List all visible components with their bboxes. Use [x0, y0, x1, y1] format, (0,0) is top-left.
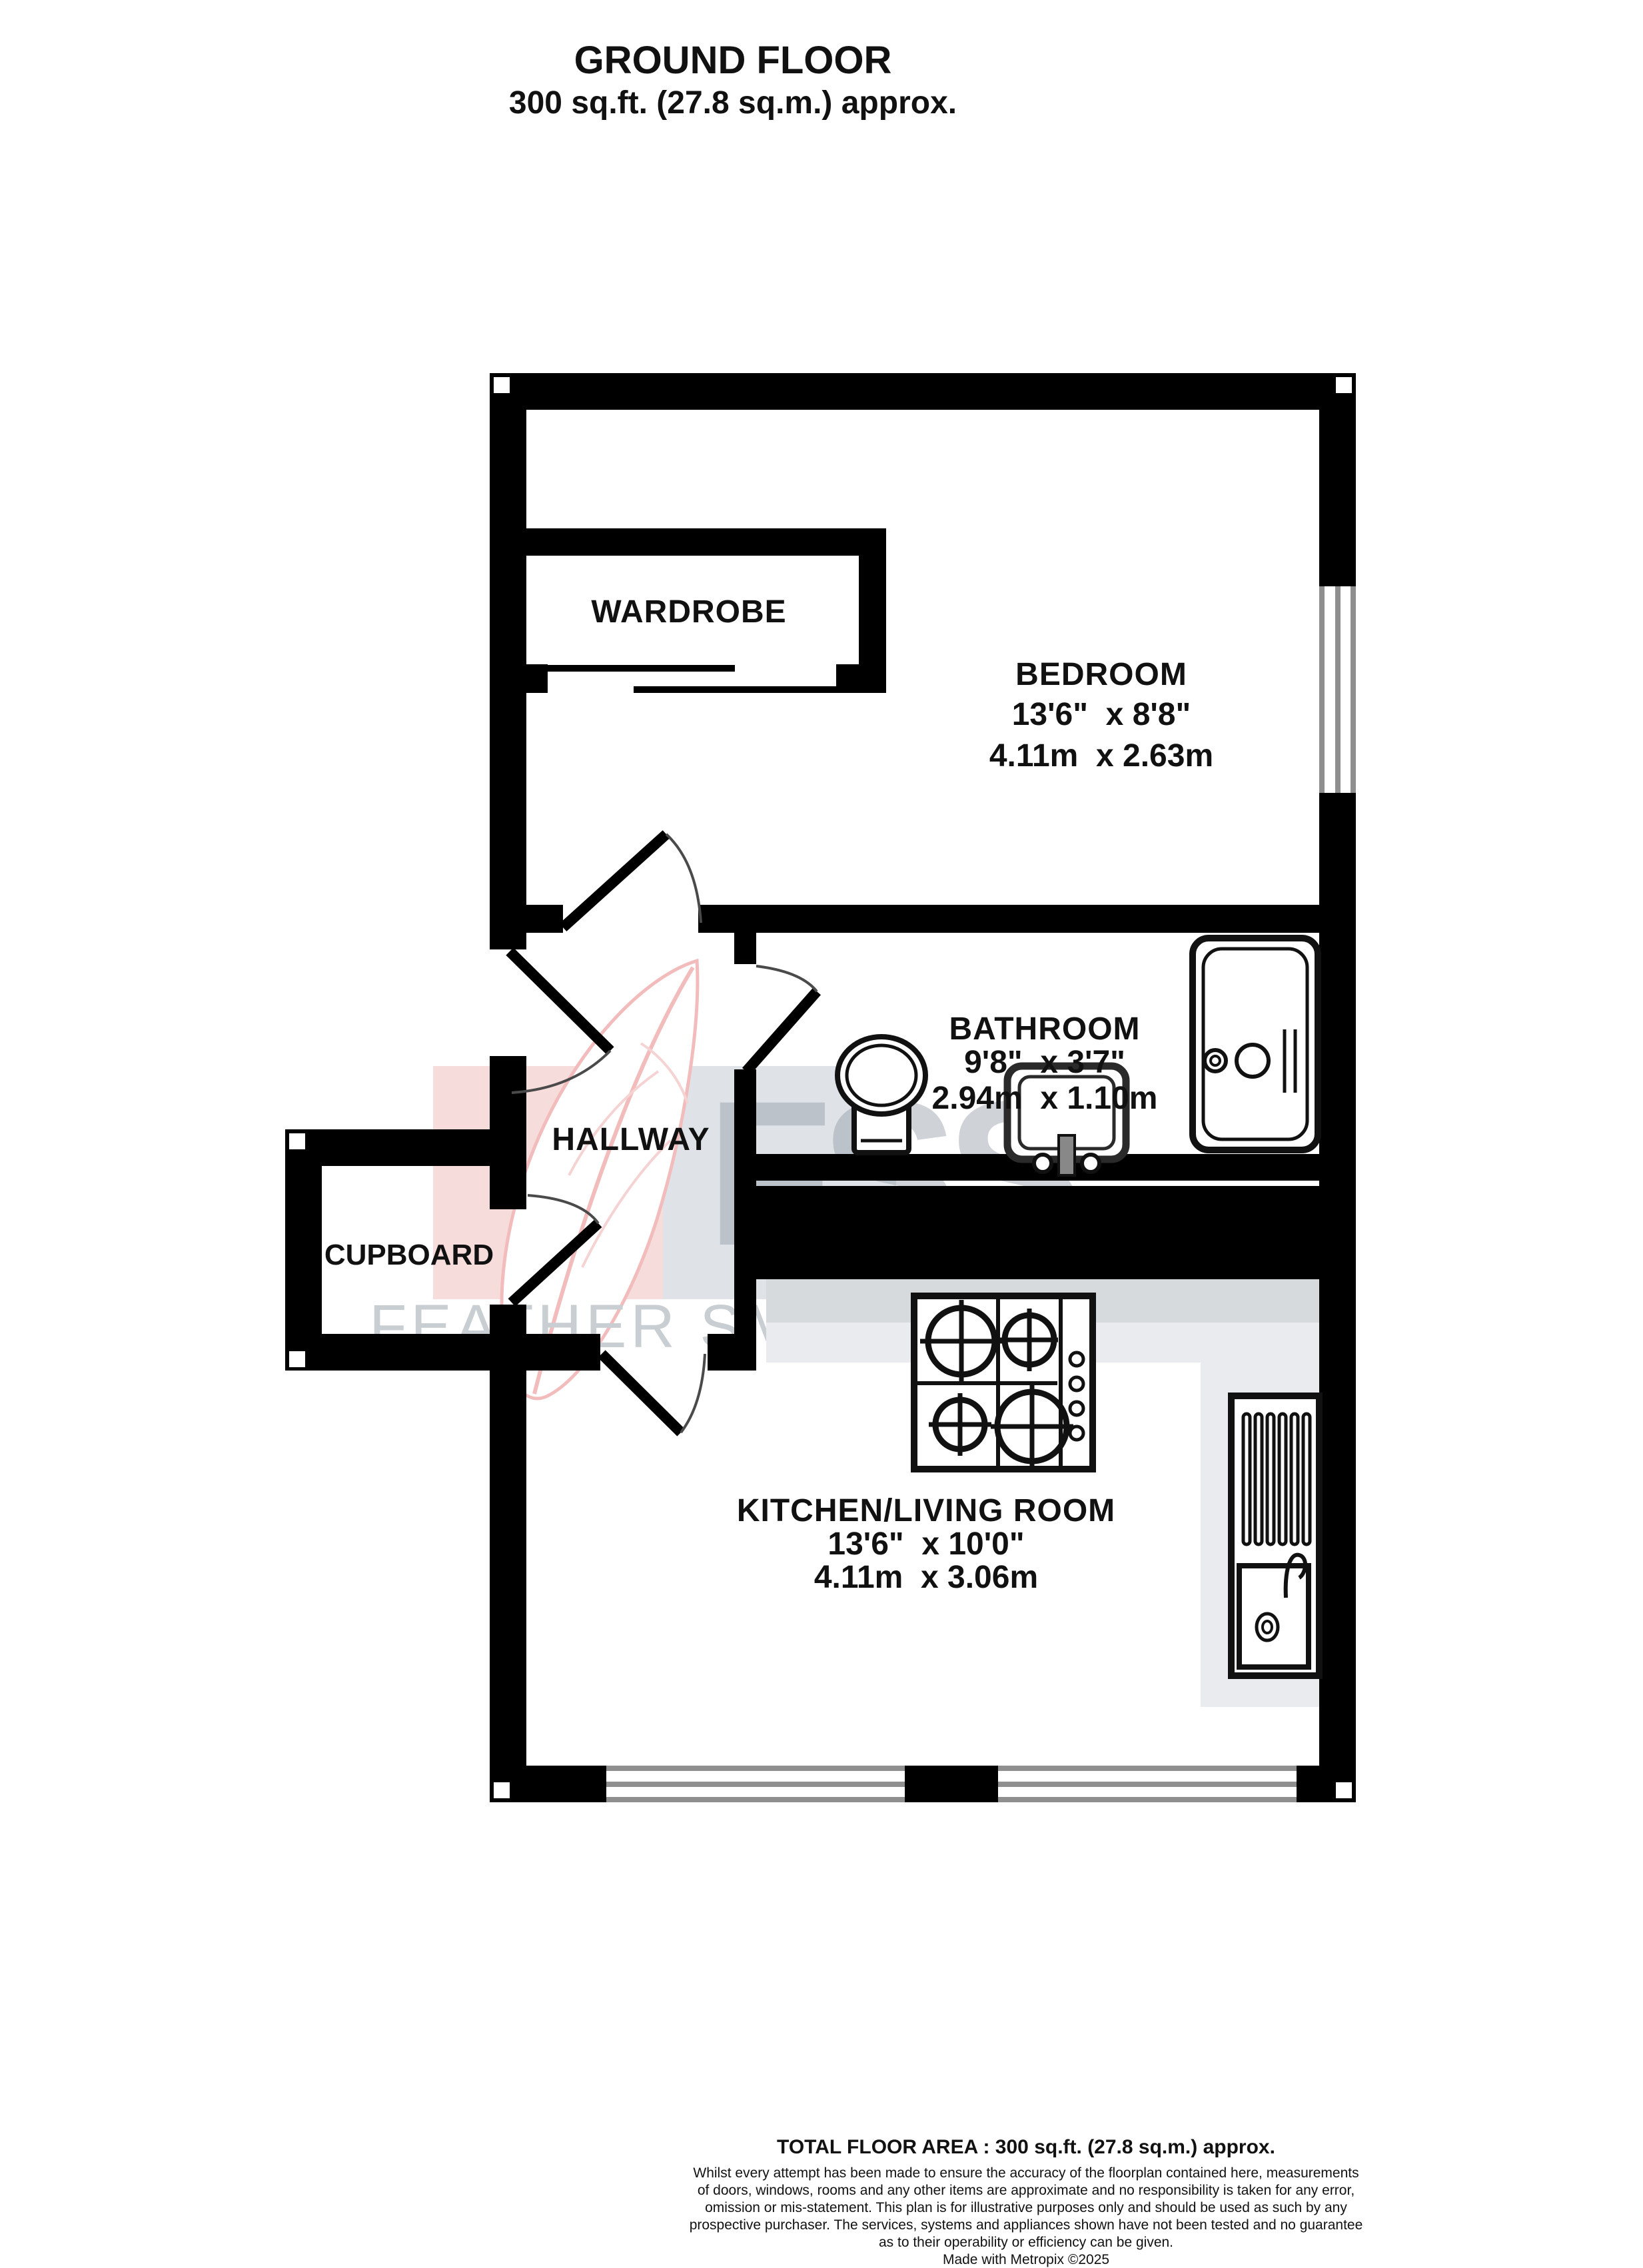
page-subtitle: 300 sq.ft. (27.8 sq.m.) approx. — [509, 85, 957, 121]
bathtub-icon — [1193, 938, 1318, 1150]
wall-vertical-stub — [734, 933, 756, 964]
door-leaf — [510, 951, 610, 1051]
wall-wardrobe-block-left — [526, 664, 548, 693]
wall-hallway-bottom — [285, 1334, 600, 1371]
door-bathroom — [746, 966, 817, 1071]
total-floor-area: TOTAL FLOOR AREA : 300 sq.ft. (27.8 sq.m… — [777, 2136, 1275, 2158]
room-dims-metric-kitchen: 4.11m x 3.06m — [814, 1560, 1038, 1595]
wall-left-lower — [490, 1305, 526, 1802]
room-dims-imperial-bedroom: 13'6" x 8'8" — [1012, 697, 1191, 732]
kitchen-sink-icon — [1231, 1396, 1319, 1676]
wardrobe-sliding-door-2 — [634, 686, 836, 693]
window-icon — [606, 1766, 905, 1802]
floorplan-canvas: GROUND FLOOR 300 sq.ft. (27.8 sq.m.) app… — [0, 0, 1643, 2268]
wall-divider — [698, 905, 1356, 933]
wall-right-lower — [1319, 793, 1356, 1802]
door-arc-icon — [666, 834, 701, 923]
disclaimer-line: as to their operability or efficiency ca… — [879, 2235, 1173, 2250]
wall-cupboard-top — [285, 1129, 526, 1166]
door-bedroom — [563, 834, 701, 927]
wall-wardrobe-block-right — [836, 664, 886, 693]
room-label-cupboard: CUPBOARD — [324, 1239, 494, 1271]
wall-top — [490, 373, 1356, 410]
disclaimer-line: prospective purchaser. The services, sys… — [690, 2217, 1363, 2233]
disclaimer-line: Whilst every attempt has been made to en… — [693, 2165, 1359, 2181]
room-dims-imperial-bathroom: 9'8" x 3'7" — [964, 1045, 1125, 1080]
door-arc-icon — [681, 1354, 705, 1432]
wardrobe-sliding-door-1 — [546, 665, 735, 672]
corner-notch — [289, 1351, 305, 1367]
floorplan-page: GROUND FLOOR 300 sq.ft. (27.8 sq.m.) app… — [0, 0, 1643, 2268]
door-leaf — [602, 1354, 681, 1432]
corner-notch — [494, 1782, 510, 1798]
room-label-bedroom: BEDROOM — [1015, 657, 1187, 692]
corner-notch — [289, 1133, 305, 1149]
wall-wardrobe-top — [526, 528, 886, 556]
wall-divider-left-stub — [490, 905, 563, 933]
room-label-bathroom: BATHROOM — [949, 1011, 1140, 1047]
corner-notch — [494, 377, 510, 393]
window-icon — [998, 1766, 1297, 1802]
wall-hallway-bottom-stub — [708, 1334, 756, 1371]
wall-right-upper — [1319, 373, 1356, 586]
room-label-hallway: HALLWAY — [552, 1122, 710, 1157]
window-icon — [1319, 586, 1356, 793]
door-leaf — [563, 834, 666, 927]
door-kitchen — [602, 1354, 705, 1432]
corner-notch — [1336, 1782, 1352, 1798]
disclaimer-line: of doors, windows, rooms and any other i… — [698, 2183, 1355, 2198]
wall-kitchen-top — [734, 1186, 1356, 1279]
room-dims-imperial-kitchen: 13'6" x 10'0" — [827, 1526, 1024, 1562]
door-arc-icon — [756, 966, 817, 991]
page-title: GROUND FLOOR — [574, 39, 892, 82]
disclaimer-line: omission or mis-statement. This plan is … — [705, 2200, 1347, 2215]
room-dims-metric-bathroom: 2.94m x 1.10m — [932, 1081, 1158, 1116]
metropix-credit: Made with Metropix ©2025 — [943, 2252, 1109, 2267]
corner-notch — [1336, 377, 1352, 393]
room-label-kitchen: KITCHEN/LIVING ROOM — [737, 1493, 1115, 1528]
room-label-wardrobe: WARDROBE — [591, 594, 786, 630]
gas-hob-icon — [914, 1296, 1093, 1469]
wall-left-upper — [490, 373, 526, 949]
room-dims-metric-bedroom: 4.11m x 2.63m — [989, 738, 1213, 774]
